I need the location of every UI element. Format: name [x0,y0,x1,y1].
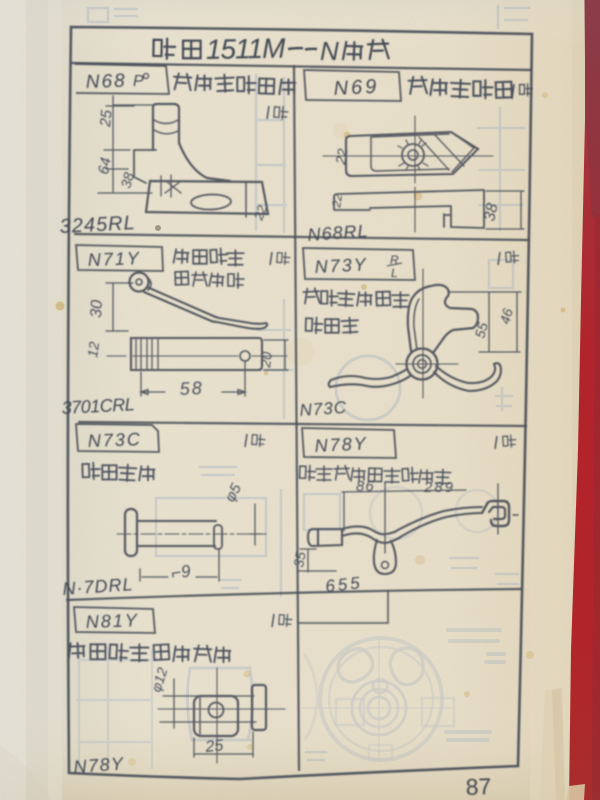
svg-text:N73C: N73C [87,429,142,451]
svg-text:64: 64 [95,156,115,175]
svg-text:35: 35 [290,550,308,568]
svg-text:1511M: 1511M [206,33,287,65]
svg-text:3701CRL: 3701CRL [61,394,135,418]
svg-text:12: 12 [84,341,102,359]
svg-text:P: P [133,73,144,90]
svg-text:3245RL: 3245RL [59,212,136,238]
svg-text:20: 20 [257,351,275,370]
svg-text:N68: N68 [85,71,127,93]
svg-text:N78Y: N78Y [314,433,368,456]
svg-text:N68RL: N68RL [307,221,369,245]
svg-text:58: 58 [179,378,204,399]
svg-text:289: 289 [423,479,455,496]
svg-text:N78Y: N78Y [73,753,126,777]
svg-text:N81Y: N81Y [85,610,139,632]
svg-text:⌐9: ⌐9 [170,561,192,583]
svg-text:22: 22 [332,147,351,166]
svg-text:25: 25 [204,737,225,756]
svg-text:87: 87 [465,773,491,800]
svg-text:22: 22 [329,193,345,210]
svg-text:86: 86 [356,478,375,495]
svg-text:25: 25 [97,109,116,129]
svg-text:L: L [391,266,398,280]
svg-text:38: 38 [481,202,501,223]
svg-text:N69: N69 [333,76,380,100]
svg-text:30: 30 [88,299,106,318]
svg-text:N73Y: N73Y [314,254,368,277]
svg-text:655: 655 [324,573,363,596]
svg-text:N71Y: N71Y [87,248,141,270]
svg-text:N: N [320,36,339,66]
svg-text:N73C: N73C [299,398,348,420]
